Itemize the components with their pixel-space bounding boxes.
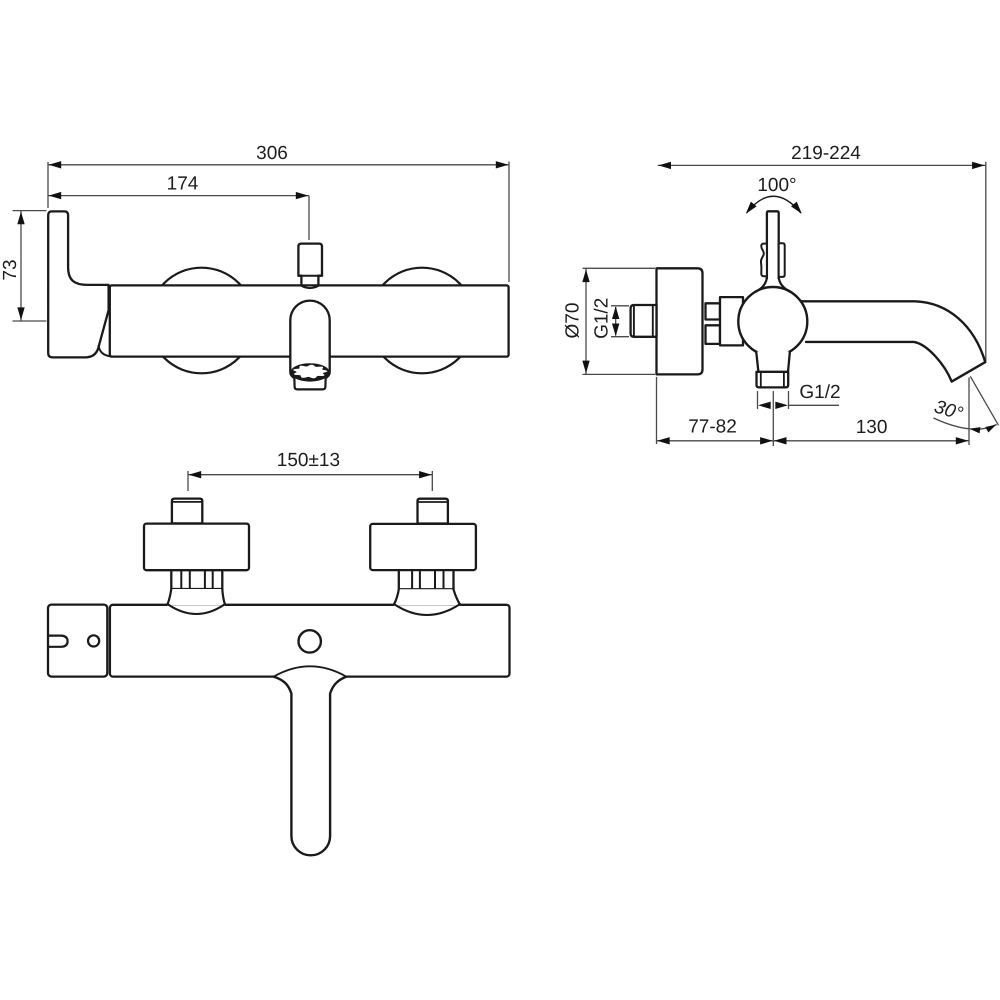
svg-text:77-82: 77-82 <box>688 417 737 438</box>
svg-text:150±13: 150±13 <box>277 450 340 471</box>
svg-text:100°: 100° <box>757 175 796 196</box>
svg-text:306: 306 <box>256 143 288 164</box>
svg-text:219-224: 219-224 <box>791 143 861 164</box>
svg-text:73: 73 <box>0 259 21 280</box>
svg-text:30°: 30° <box>932 397 966 426</box>
svg-text:G1/2: G1/2 <box>592 298 613 339</box>
svg-text:174: 174 <box>167 174 199 195</box>
svg-text:130: 130 <box>856 417 888 438</box>
svg-text:Ø70: Ø70 <box>563 303 584 339</box>
svg-text:G1/2: G1/2 <box>799 382 840 403</box>
